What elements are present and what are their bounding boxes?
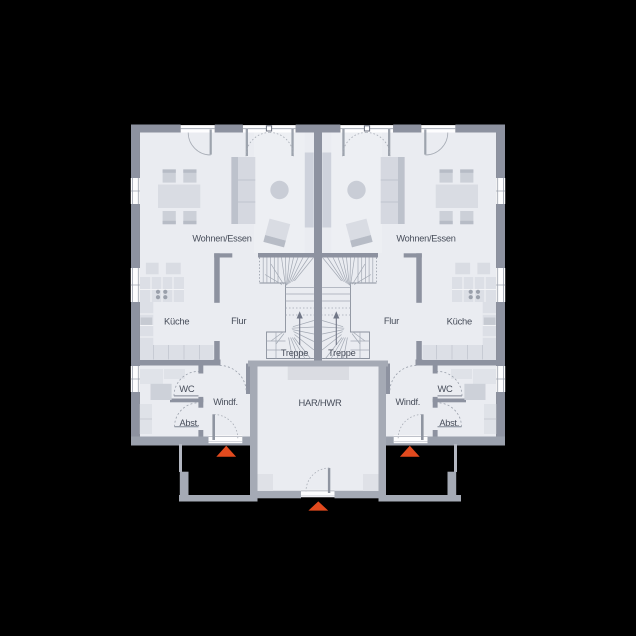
svg-text:Flur: Flur xyxy=(231,315,246,326)
svg-text:Windf.: Windf. xyxy=(213,397,238,407)
svg-text:Wohnen/Essen: Wohnen/Essen xyxy=(192,234,251,244)
svg-text:WC: WC xyxy=(179,383,195,394)
svg-text:HAR/HWR: HAR/HWR xyxy=(298,397,342,408)
svg-text:Treppe: Treppe xyxy=(328,348,355,358)
svg-text:Wohnen/Essen: Wohnen/Essen xyxy=(396,234,455,244)
svg-text:Abst.: Abst. xyxy=(439,418,459,428)
svg-text:Küche: Küche xyxy=(164,316,189,327)
svg-text:WC: WC xyxy=(437,383,453,394)
svg-text:Küche: Küche xyxy=(447,316,472,327)
svg-text:Abst.: Abst. xyxy=(180,418,200,428)
svg-text:Windf.: Windf. xyxy=(396,397,421,407)
svg-text:Flur: Flur xyxy=(384,315,399,326)
svg-text:Treppe: Treppe xyxy=(281,348,308,358)
